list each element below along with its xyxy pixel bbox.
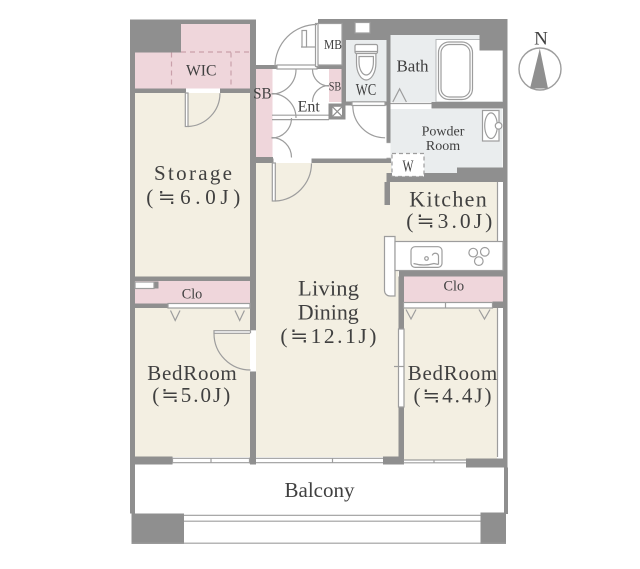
svg-text:N: N: [534, 29, 548, 50]
svg-text:Clo: Clo: [444, 279, 465, 295]
svg-text:BedRoom: BedRoom: [408, 361, 498, 385]
svg-text:Clo: Clo: [182, 287, 203, 303]
svg-text:Bath: Bath: [396, 57, 429, 76]
svg-text:(≒4.4J): (≒4.4J): [414, 384, 492, 408]
svg-text:WIC: WIC: [186, 61, 217, 80]
svg-text:W: W: [403, 157, 415, 176]
svg-text:(≒12.1J): (≒12.1J): [280, 324, 376, 348]
svg-text:MB: MB: [324, 37, 342, 52]
svg-text:Kitchen: Kitchen: [409, 187, 487, 212]
svg-text:Dining: Dining: [298, 300, 359, 325]
svg-text:Ent: Ent: [298, 99, 321, 116]
svg-text:BedRoom: BedRoom: [147, 361, 237, 385]
svg-text:SB: SB: [329, 79, 342, 94]
svg-text:WC: WC: [356, 80, 377, 99]
svg-text:SB: SB: [253, 86, 272, 103]
svg-text:Powder: Powder: [422, 125, 465, 140]
svg-text:Balcony: Balcony: [285, 478, 355, 502]
svg-text:Room: Room: [426, 139, 460, 154]
svg-text:Living: Living: [298, 275, 359, 300]
svg-text:(≒5.0J): (≒5.0J): [152, 383, 230, 407]
